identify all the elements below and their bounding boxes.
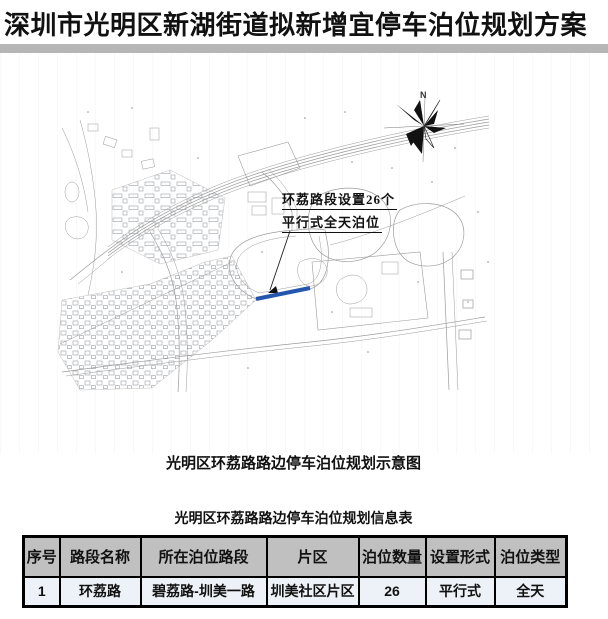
col-header-no: 序号 — [24, 537, 60, 577]
col-header-road-name: 路段名称 — [60, 537, 141, 577]
document-title: 深圳市光明区新湖街道拟新增宜停车泊位规划方案 — [4, 5, 604, 42]
cell-district: 圳美社区片区 — [267, 577, 359, 607]
document-page: 深圳市光明区新湖街道拟新增宜停车泊位规划方案 — [0, 0, 608, 619]
table-header-row: 序号 路段名称 所在泊位路段 片区 泊位数量 设置形式 泊位类型 — [24, 537, 567, 577]
cell-road-name: 环荔路 — [60, 577, 141, 607]
annotation-line-1: 环荔路段设置26个 — [282, 189, 397, 210]
table-title: 光明区环荔路路边停车泊位规划信息表 — [22, 508, 565, 528]
planning-map: N — [0, 53, 608, 453]
col-header-district: 片区 — [267, 537, 359, 577]
map-caption: 光明区环荔路路边停车泊位规划示意图 — [22, 452, 565, 473]
cell-form: 平行式 — [426, 577, 495, 607]
col-header-form: 设置形式 — [426, 537, 495, 577]
annotation-leader-line — [270, 231, 290, 290]
annotation-line-2: 平行式全天泊位 — [282, 212, 382, 233]
col-header-type: 泊位类型 — [495, 537, 567, 577]
cell-section: 碧荔路-圳美一路 — [141, 577, 267, 607]
table-row: 1 环荔路 碧荔路-圳美一路 圳美社区片区 26 平行式 全天 — [24, 577, 567, 607]
title-divider-bar — [0, 44, 608, 53]
north-label: N — [420, 90, 427, 100]
col-header-section: 所在泊位路段 — [141, 537, 267, 577]
col-header-count: 泊位数量 — [359, 537, 426, 577]
parking-info-table: 序号 路段名称 所在泊位路段 片区 泊位数量 设置形式 泊位类型 1 环荔路 碧… — [22, 535, 568, 608]
cell-no: 1 — [24, 577, 60, 607]
highlighted-road-segment — [256, 288, 310, 299]
cell-count: 26 — [359, 577, 426, 607]
map-annotation: 环荔路段设置26个 平行式全天泊位 — [282, 189, 397, 235]
cell-type: 全天 — [495, 577, 567, 607]
compass-rose-icon — [384, 98, 464, 162]
map-line-art: N — [0, 53, 608, 453]
leader-arrowhead — [268, 286, 278, 293]
